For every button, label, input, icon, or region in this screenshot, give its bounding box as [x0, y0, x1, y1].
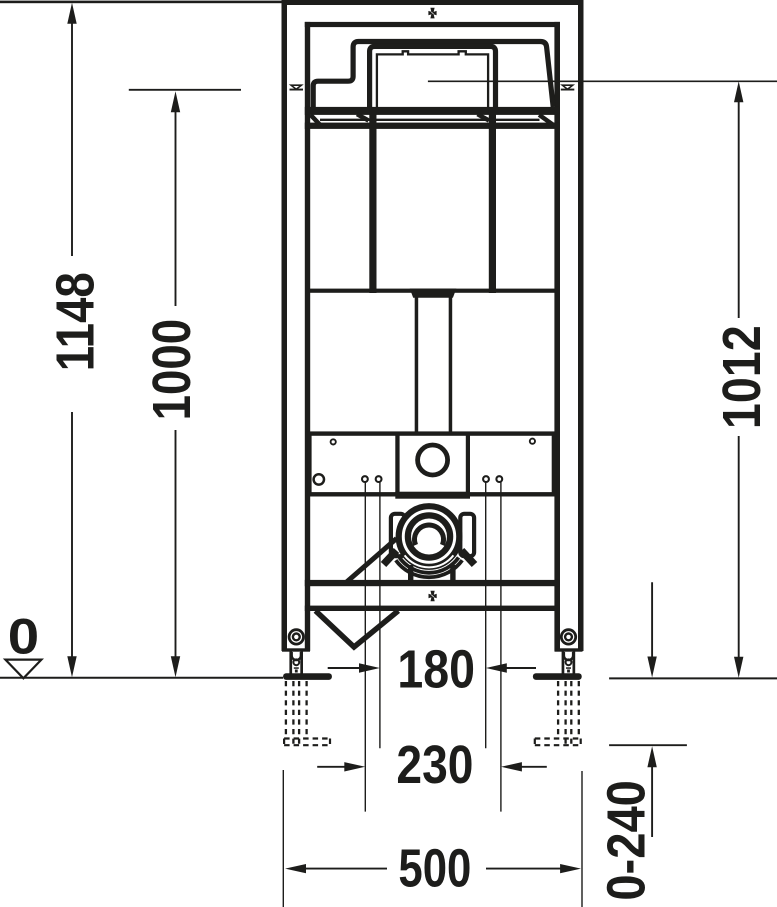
svg-text:230: 230: [396, 735, 473, 795]
svg-text:1148: 1148: [45, 272, 105, 371]
svg-text:1000: 1000: [142, 319, 202, 421]
svg-text:0: 0: [8, 610, 39, 665]
svg-text:500: 500: [398, 839, 471, 898]
svg-text:1012: 1012: [711, 325, 772, 429]
svg-text:0-240: 0-240: [596, 780, 657, 901]
svg-text:180: 180: [397, 638, 475, 699]
